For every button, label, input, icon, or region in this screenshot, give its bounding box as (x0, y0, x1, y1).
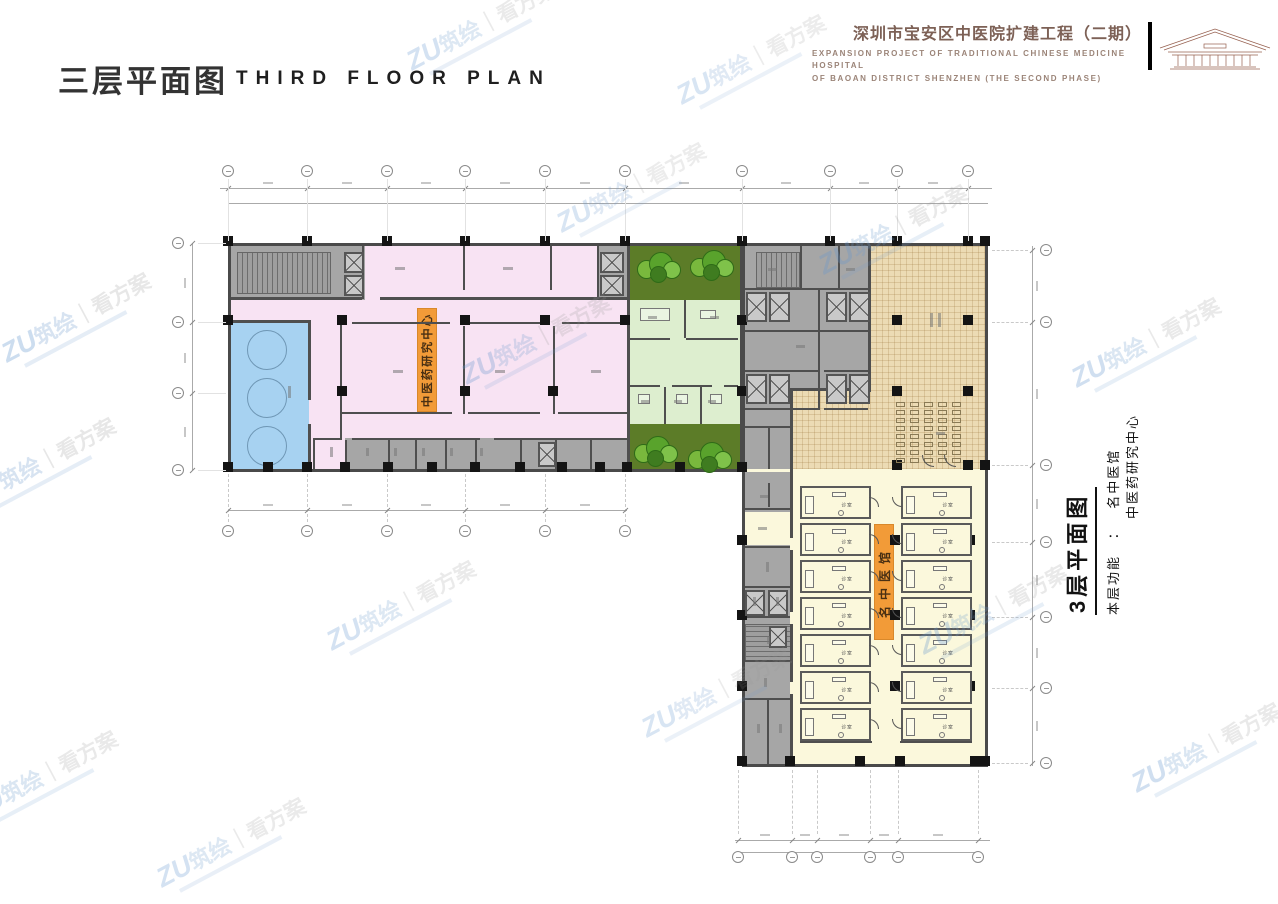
wall (313, 438, 340, 440)
watermark-logo: ZU (671, 67, 717, 110)
watermark: ZU筑绘｜看方案 (551, 134, 714, 245)
wall (553, 326, 555, 414)
drawing-sheet: 三层平面图 THIRD FLOOR PLAN 深圳市宝安区中医院扩建工程（二期）… (0, 0, 1278, 904)
room-label-mark (757, 724, 760, 733)
waiting-seat (924, 434, 933, 439)
watermark-subline (349, 598, 452, 655)
watermark-subline (179, 835, 282, 892)
wall (684, 300, 686, 338)
wall (790, 550, 793, 612)
room-label: 诊室 (942, 538, 953, 545)
grid-leader (465, 179, 466, 241)
chair (939, 658, 945, 664)
grid-bubble (222, 165, 234, 177)
dimension-text-mark (760, 834, 770, 836)
waiting-seat (952, 410, 961, 415)
wall (686, 338, 738, 340)
room-furniture (805, 718, 814, 736)
grid-leader (228, 179, 229, 241)
waiting-seat (896, 434, 905, 439)
dimension-line (192, 243, 193, 470)
consult-room: 诊室 (800, 523, 871, 556)
dimension-text-mark (679, 182, 689, 184)
waiting-seat (938, 426, 947, 431)
dimension-text-mark (580, 504, 590, 506)
room-label-mark (330, 447, 333, 457)
watermark-suffix: ｜看方案 (475, 0, 560, 38)
elevator (746, 374, 767, 404)
column-marker (548, 386, 558, 396)
room-furniture (906, 718, 915, 736)
room-furniture (933, 603, 947, 608)
grid-bubble (864, 851, 876, 863)
consult-room: 诊室 (800, 708, 871, 741)
column-marker (557, 462, 567, 472)
wall (627, 246, 630, 469)
grid-bubble (301, 525, 313, 537)
column-marker (785, 756, 795, 766)
watermark: ZU筑绘｜看方案 (0, 722, 125, 833)
room-label: 诊室 (841, 538, 852, 545)
grid-leader (898, 770, 899, 834)
grid-bubble (1040, 757, 1052, 769)
dimension-text-mark (580, 182, 590, 184)
grid-leader (992, 617, 1028, 618)
grid-leader (307, 474, 308, 522)
elevator (746, 292, 767, 322)
wall (597, 246, 599, 299)
waiting-seat (938, 410, 947, 415)
consult-room: 诊室 (901, 560, 972, 593)
room-furniture (933, 714, 947, 719)
room-label: 诊室 (841, 649, 852, 656)
room-label: 诊室 (841, 686, 852, 693)
column-marker (737, 681, 747, 691)
grid-leader (738, 770, 739, 834)
elevator (769, 626, 787, 648)
column-marker (963, 386, 973, 396)
room-label: 诊室 (942, 575, 953, 582)
wall (340, 322, 342, 440)
watermark-subline (24, 310, 127, 367)
wall (352, 322, 450, 324)
watermark-logo: ZU (0, 470, 7, 513)
wall (590, 440, 592, 469)
wall (767, 700, 769, 764)
grid-leader (198, 243, 226, 244)
wall (558, 412, 627, 414)
round-table (247, 330, 287, 370)
room-label-mark (450, 448, 453, 456)
room-label: 诊室 (942, 501, 953, 508)
grid-bubble (736, 165, 748, 177)
consult-room: 诊室 (800, 634, 871, 667)
watermark-logo: ZU (636, 700, 682, 743)
watermark-brand: 筑绘 (585, 178, 636, 221)
wall (745, 616, 790, 618)
elevator (769, 374, 790, 404)
column-marker (340, 462, 350, 472)
chair (939, 547, 945, 553)
watermark-brand: 筑绘 (435, 16, 486, 59)
room-furniture (933, 640, 947, 645)
watermark-subline (0, 455, 92, 512)
green-room-furniture (676, 394, 688, 404)
floor-title-cn: 三层平面图 (58, 56, 228, 101)
column-marker (892, 386, 902, 396)
wall (340, 412, 452, 414)
dimension-text-mark (263, 504, 273, 506)
column-marker (963, 460, 973, 470)
room-label: 诊室 (942, 612, 953, 619)
grid-bubble (1040, 611, 1052, 623)
waiting-seat (910, 410, 919, 415)
consult-room: 诊室 (901, 523, 972, 556)
column-marker (737, 756, 747, 766)
room-furniture (832, 714, 846, 719)
column-marker (622, 462, 632, 472)
grid-leader (198, 470, 226, 471)
watermark: ZU筑绘｜看方案 (671, 6, 834, 117)
watermark: ZU筑绘｜看方案 (321, 552, 484, 663)
grid-leader (625, 179, 626, 241)
wall (231, 297, 362, 300)
room-label-mark (779, 724, 782, 733)
elevator (849, 292, 870, 322)
dimension-text-mark (1036, 389, 1038, 399)
waiting-seat (952, 402, 961, 407)
grid-bubble (962, 165, 974, 177)
dimension-text-mark (1036, 721, 1038, 731)
room-label-mark (846, 268, 855, 271)
chair (939, 732, 945, 738)
dimension-text-mark (928, 182, 938, 184)
column-marker (515, 462, 525, 472)
watermark-logo: ZU (0, 325, 42, 368)
grid-leader (228, 474, 229, 522)
waiting-seat (924, 442, 933, 447)
wall (818, 290, 820, 330)
column-marker (980, 460, 990, 470)
room-furniture (906, 681, 915, 699)
waiting-seat (938, 434, 947, 439)
room-label-mark (288, 386, 291, 398)
column-marker (895, 756, 905, 766)
consult-room: 诊室 (800, 486, 871, 519)
dimension-text-mark (800, 834, 810, 836)
watermark-brand: 筑绘 (705, 50, 756, 93)
elevator (826, 292, 847, 322)
wall (900, 741, 972, 743)
watermark-suffix: ｜看方案 (70, 270, 155, 330)
grid-leader (992, 322, 1028, 323)
room-label: 诊室 (841, 612, 852, 619)
tree-canopy (701, 456, 718, 473)
grid-leader (978, 770, 979, 834)
grid-bubble (786, 851, 798, 863)
dimension-line (738, 852, 978, 853)
column-marker (892, 315, 902, 325)
side-annotation-functions: 本层功能 ： 名中医馆 中医药研究中心 (1103, 365, 1141, 615)
room-label-mark (480, 448, 483, 456)
elevator (826, 374, 847, 404)
dimension-text-mark (342, 504, 352, 506)
waiting-seat (896, 442, 905, 447)
function-value-1: 名中医馆 (1106, 449, 1121, 509)
room-furniture (832, 640, 846, 645)
room-label: 诊室 (942, 686, 953, 693)
column-marker (980, 236, 990, 246)
wall (818, 330, 820, 410)
grid-leader (198, 393, 226, 394)
consult-room: 诊室 (901, 486, 972, 519)
tree-canopy (703, 264, 720, 281)
column-marker (427, 462, 437, 472)
column-marker (620, 315, 630, 325)
room-label-mark (648, 316, 657, 319)
chair (838, 621, 844, 627)
header-divider-bar (1148, 22, 1152, 70)
side-annotation-title: 3层平面图 (1060, 487, 1097, 615)
wall (800, 741, 872, 743)
watermark-brand: 筑绘 (355, 596, 406, 639)
function-label: 本层功能 (1106, 555, 1121, 615)
grid-leader (817, 770, 818, 834)
column-marker (263, 462, 273, 472)
room-label-mark (758, 527, 767, 530)
waiting-seat (896, 458, 905, 463)
dimension-text-mark (421, 504, 431, 506)
room-furniture (805, 533, 814, 551)
wall (231, 320, 311, 323)
grid-leader (545, 474, 546, 522)
watermark-logo: ZU (0, 783, 9, 826)
column-marker (302, 462, 312, 472)
room-label: 诊室 (942, 723, 953, 730)
waiting-seat (910, 426, 919, 431)
room-label-mark (753, 597, 756, 606)
dimension-line (228, 203, 988, 204)
room-furniture (805, 570, 814, 588)
column-marker (223, 315, 233, 325)
grid-bubble (972, 851, 984, 863)
wall (380, 297, 627, 300)
elevator (538, 442, 556, 467)
dimension-text-mark (421, 182, 431, 184)
wall (745, 330, 868, 332)
wall (824, 370, 868, 372)
wall (664, 387, 666, 424)
waiting-seat (910, 458, 919, 463)
room-label-mark (674, 400, 682, 403)
room-furniture (805, 681, 814, 699)
grid-bubble (381, 165, 393, 177)
watermark-suffix: ｜看方案 (887, 182, 972, 242)
watermark-suffix: ｜看方案 (395, 558, 480, 618)
grid-bubble (301, 165, 313, 177)
consult-room: 诊室 (901, 708, 972, 741)
column-marker (540, 315, 550, 325)
room-label-mark (764, 678, 767, 687)
wall (630, 338, 670, 340)
watermark-suffix: ｜看方案 (35, 415, 120, 475)
room-furniture (933, 677, 947, 682)
waiting-seat (924, 402, 933, 407)
column-marker (737, 535, 747, 545)
dimension-text-mark (500, 182, 510, 184)
room-label-mark (760, 495, 768, 498)
grid-leader (625, 474, 626, 522)
column-marker (855, 756, 865, 766)
room-furniture (832, 566, 846, 571)
room-furniture (805, 496, 814, 514)
dimension-text-mark (859, 182, 869, 184)
dimension-text-mark (1036, 499, 1038, 509)
grid-bubble (619, 525, 631, 537)
watermark: ZU筑绘｜看方案 (0, 409, 123, 520)
dimension-line (735, 840, 990, 841)
room-label-mark (393, 370, 403, 373)
dimension-line (220, 188, 992, 189)
dimension-text-mark (263, 182, 273, 184)
function-colon: ： (1106, 514, 1121, 549)
grid-bubble (619, 165, 631, 177)
function-line-1: 本层功能 ： 名中医馆 (1103, 365, 1122, 615)
elevator (769, 292, 790, 322)
waiting-seat (896, 410, 905, 415)
grid-bubble (1040, 316, 1052, 328)
grid-leader (992, 542, 1028, 543)
side-annotation: 3层平面图 本层功能 ： 名中医馆 中医药研究中心 (1060, 365, 1124, 615)
room-furniture (906, 570, 915, 588)
grid-bubble (1040, 682, 1052, 694)
grid-bubble (1040, 459, 1052, 471)
column-marker (460, 315, 470, 325)
grid-bubble (172, 316, 184, 328)
wall (562, 322, 625, 324)
grid-leader (387, 474, 388, 522)
room-label-mark (930, 313, 933, 327)
grid-leader (870, 770, 871, 834)
column-marker (963, 315, 973, 325)
wall (463, 326, 465, 414)
grid-bubble (1040, 244, 1052, 256)
grid-bubble (892, 851, 904, 863)
dimension-text-mark (879, 834, 889, 836)
waiting-seat (910, 442, 919, 447)
wall (768, 483, 770, 507)
project-title-block: 深圳市宝安区中医院扩建工程（二期） EXPANSION PROJECT OF T… (812, 20, 1142, 85)
wall (700, 387, 702, 424)
elevator (344, 275, 364, 296)
room-furniture (906, 644, 915, 662)
column-marker (383, 462, 393, 472)
tree (637, 252, 681, 284)
room-furniture (933, 566, 947, 571)
grid-leader (742, 179, 743, 241)
waiting-seat (938, 402, 947, 407)
room-label-mark (503, 267, 513, 270)
waiting-seat (910, 434, 919, 439)
column-marker (470, 462, 480, 472)
dimension-text-mark (1036, 281, 1038, 291)
room-label-mark (938, 313, 941, 327)
tree (634, 436, 678, 468)
wall (745, 660, 790, 662)
grid-leader (992, 465, 1028, 466)
dimension-text-mark (342, 182, 352, 184)
wall (745, 586, 790, 588)
room-label-mark (710, 316, 719, 319)
chair (939, 621, 945, 627)
wall (494, 438, 627, 440)
green-room-furniture (638, 394, 650, 404)
grid-bubble (172, 387, 184, 399)
grid-leader (387, 179, 388, 241)
room-label-mark (641, 400, 649, 403)
wall (550, 246, 552, 290)
watermark-subline (1154, 740, 1257, 797)
project-title-en-line1: EXPANSION PROJECT OF TRADITIONAL CHINESE… (812, 48, 1142, 73)
consult-room: 诊室 (901, 597, 972, 630)
room-furniture (933, 529, 947, 534)
chair (838, 695, 844, 701)
grid-bubble (381, 525, 393, 537)
waiting-seat (910, 450, 919, 455)
room-label-mark (395, 267, 405, 270)
elevator (849, 374, 870, 404)
stair (756, 252, 800, 288)
dimension-text-mark (500, 504, 510, 506)
watermark-brand: 筑绘 (30, 308, 81, 351)
watermark-suffix: ｜看方案 (37, 728, 122, 788)
watermark-logo: ZU (321, 613, 367, 656)
zone-waiting-nook (745, 512, 790, 545)
watermark-brand: 筑绘 (0, 453, 45, 496)
room-label-mark (591, 370, 601, 373)
chair (838, 547, 844, 553)
elevator (344, 252, 364, 273)
room-label: 诊室 (841, 723, 852, 730)
wall (790, 694, 793, 764)
grid-leader (307, 179, 308, 241)
grid-leader (792, 770, 793, 834)
consult-room: 诊室 (800, 597, 871, 630)
watermark-subline (699, 52, 802, 109)
chair (838, 658, 844, 664)
wall (745, 408, 820, 410)
wall (468, 322, 540, 324)
dimension-tick (190, 468, 196, 474)
room-label-mark (768, 268, 777, 271)
column-marker (595, 462, 605, 472)
grid-bubble (222, 525, 234, 537)
room-label-mark (422, 448, 425, 456)
room-label-mark (776, 597, 779, 606)
building-logo-icon (1158, 24, 1272, 72)
grid-bubble (1040, 536, 1052, 548)
round-table (247, 378, 287, 418)
waiting-seat (938, 442, 947, 447)
wall (745, 288, 868, 290)
grid-leader (897, 179, 898, 241)
wall (824, 408, 868, 410)
dimension-line (228, 510, 627, 511)
room-furniture (933, 492, 947, 497)
dimension-text-mark (781, 182, 791, 184)
watermark-suffix: ｜看方案 (1200, 700, 1278, 760)
consult-room: 诊室 (800, 671, 871, 704)
